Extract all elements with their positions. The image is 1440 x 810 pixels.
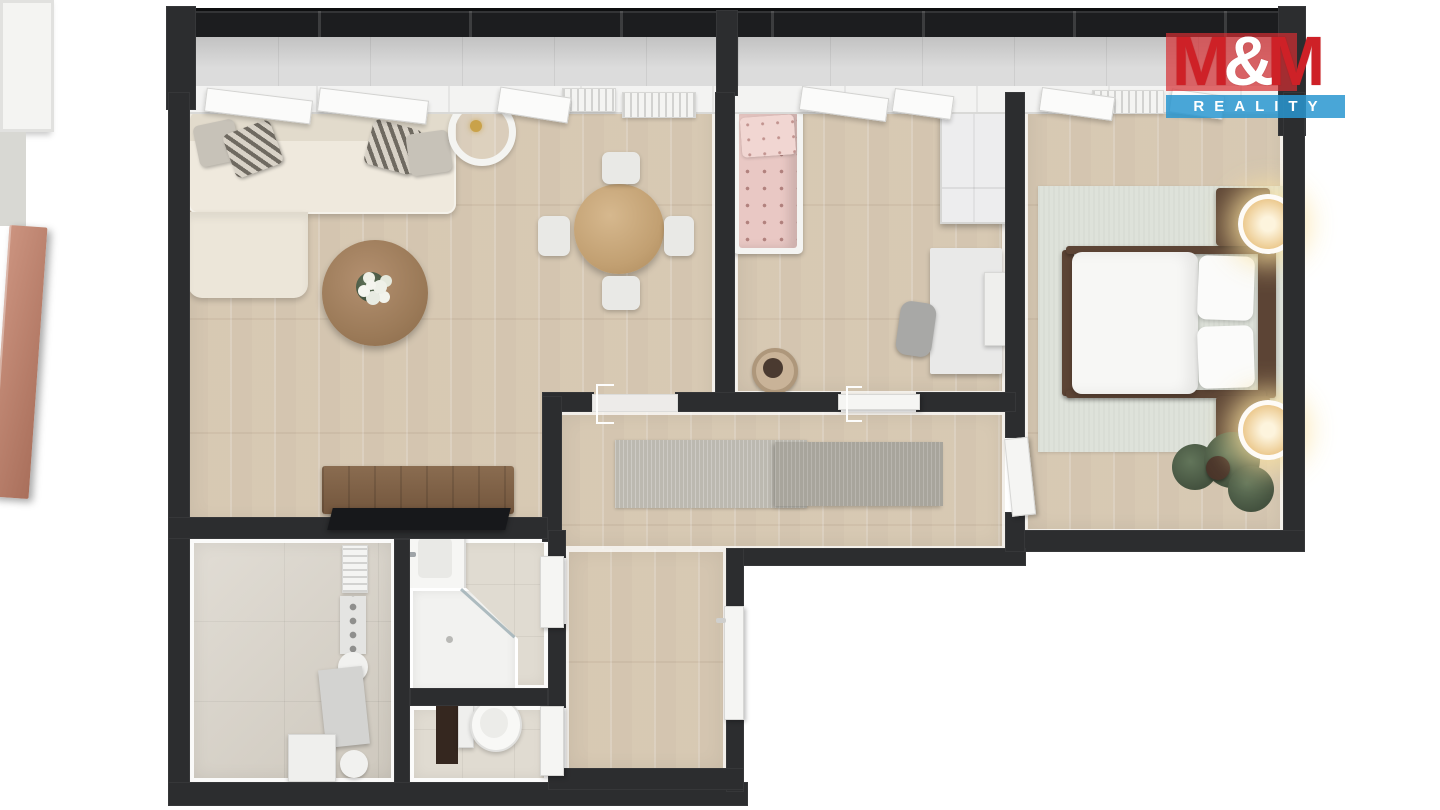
dining-chair: [538, 216, 570, 256]
boiler-small: [340, 750, 368, 778]
balcony-divider-wall: [716, 10, 738, 96]
wardrobe: [940, 108, 1008, 224]
sofa-chaise: [188, 212, 308, 298]
room-hallway-lower: [566, 549, 726, 771]
main-entrance-door: [724, 606, 744, 720]
sofa-pillow: [405, 129, 452, 176]
dining-chair: [602, 152, 640, 184]
logo-letter-m1: M: [1172, 22, 1223, 100]
exterior-door-glass: [0, 132, 26, 226]
wall: [548, 624, 566, 708]
entry-radiator: [342, 545, 368, 593]
wall: [410, 688, 548, 706]
logo-letter-m2: M: [1267, 22, 1318, 100]
wall: [715, 92, 735, 412]
wall: [1008, 530, 1305, 552]
dining-table: [574, 184, 664, 274]
wc-door: [540, 706, 564, 776]
copper-entry-door: [0, 225, 47, 499]
bathroom-door: [540, 556, 564, 628]
flower-bouquet: [366, 280, 376, 290]
wall-hook-panel: [340, 596, 366, 654]
radiator: [622, 92, 696, 118]
toilet-bowl: [480, 708, 508, 738]
basket-interior: [763, 358, 783, 378]
bed-pillow: [1197, 255, 1255, 321]
wall: [168, 92, 190, 806]
wall: [1005, 92, 1025, 438]
logo-ampersand: &: [1223, 22, 1267, 100]
shower-drain: [446, 636, 453, 643]
bed-headboard: [1258, 246, 1276, 398]
bed-pillow: [1197, 325, 1255, 389]
brand-logo: M&M: [1172, 26, 1318, 96]
wall: [675, 392, 841, 412]
wall: [1005, 512, 1025, 552]
door-swing-mark: [846, 386, 862, 422]
logo-blue-bar: REALITY: [1166, 95, 1345, 118]
wall: [916, 392, 1016, 412]
door-handle: [716, 618, 726, 623]
exterior-glass-door: [0, 0, 54, 132]
plant-pot: [1206, 456, 1230, 480]
wall: [726, 548, 744, 608]
door-swing-mark: [596, 384, 614, 424]
wall: [548, 768, 744, 790]
floor-plan-render: M&M REALITY: [0, 0, 1440, 810]
storage-box: [288, 734, 336, 782]
child-bed-pillow: [740, 114, 797, 158]
washbasin-bowl: [418, 538, 452, 578]
wall: [394, 539, 410, 783]
runner-rug-dark: [775, 442, 943, 506]
kitchen-counter: [322, 466, 514, 514]
kitchen-countertop: [327, 508, 510, 530]
wall: [726, 548, 1026, 566]
desk-chair: [894, 300, 937, 358]
logo-tagline: REALITY: [1183, 98, 1327, 115]
dining-chair: [664, 216, 694, 256]
wall: [1283, 92, 1305, 550]
bed-duvet: [1072, 252, 1198, 394]
wall: [548, 530, 566, 558]
duct-shaft: [436, 696, 458, 764]
dining-chair: [602, 276, 640, 310]
floor-lamp-core: [470, 120, 482, 132]
plant-foliage: [1228, 466, 1274, 512]
